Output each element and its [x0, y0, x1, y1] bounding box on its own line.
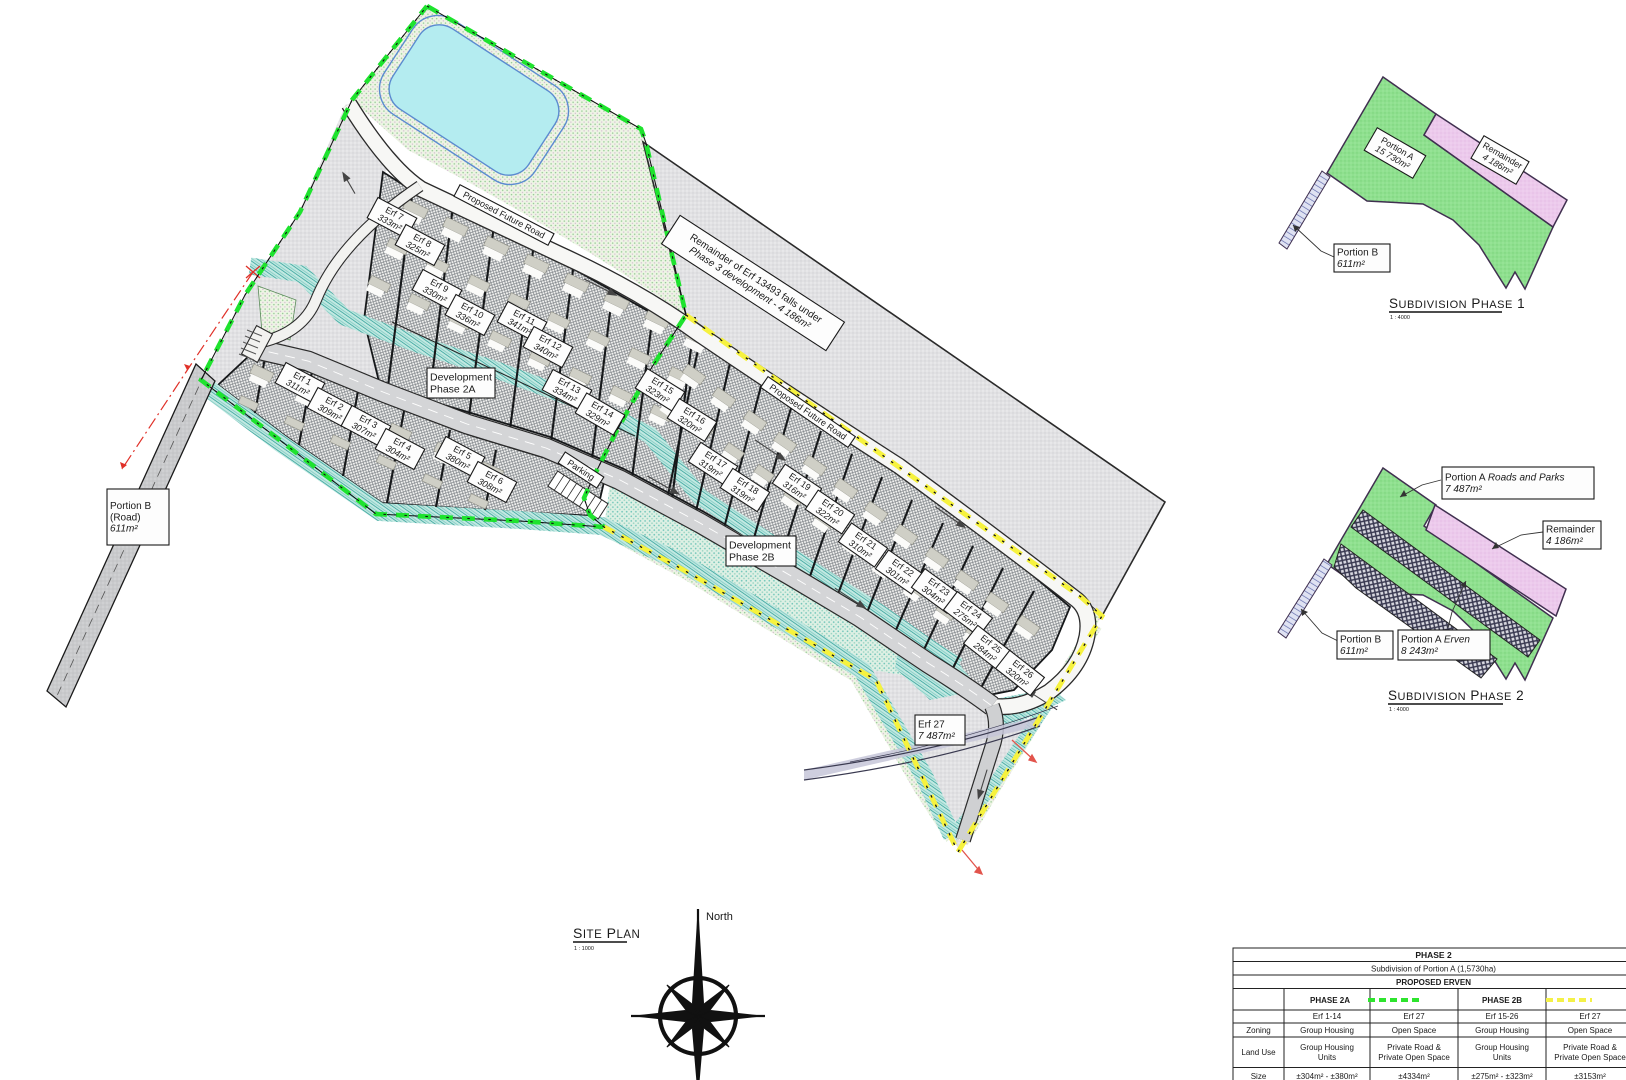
svg-text:Phase 2A: Phase 2A: [430, 383, 476, 395]
svg-text:Remainder: Remainder: [1546, 525, 1596, 536]
svg-text:Development: Development: [729, 540, 791, 552]
svg-text:611m²: 611m²: [1340, 646, 1368, 657]
svg-text:Private Open Space: Private Open Space: [1554, 1053, 1626, 1062]
svg-text:Units: Units: [1318, 1053, 1336, 1062]
svg-text:Erf 27: Erf 27: [1403, 1012, 1425, 1021]
svg-text:4 186m²: 4 186m²: [1546, 536, 1583, 547]
svg-text:(Road): (Road): [110, 512, 141, 523]
svg-text:PHASE 2B: PHASE 2B: [1482, 996, 1522, 1005]
svg-text:SUBDIVISION PHASE 2: SUBDIVISION PHASE 2: [1388, 688, 1524, 703]
svg-text:±275m² - ±323m²: ±275m² - ±323m²: [1471, 1072, 1533, 1080]
svg-text:Portion A Erven: Portion A Erven: [1401, 635, 1470, 646]
svg-text:±3153m²: ±3153m²: [1574, 1072, 1606, 1080]
svg-text:Size: Size: [1251, 1072, 1267, 1080]
svg-text:Erf 27: Erf 27: [918, 720, 945, 731]
svg-text:1 : 1000: 1 : 1000: [574, 946, 594, 952]
svg-text:Development: Development: [430, 372, 492, 384]
svg-text:Subdivision of Portion A (1,57: Subdivision of Portion A (1,5730ha): [1371, 965, 1496, 974]
svg-text:Land Use: Land Use: [1241, 1048, 1276, 1057]
svg-text:611m²: 611m²: [110, 524, 138, 535]
svg-text:Private Road &: Private Road &: [1563, 1043, 1617, 1052]
svg-text:Erf 15-26: Erf 15-26: [1486, 1012, 1519, 1021]
svg-text:Group Housing: Group Housing: [1475, 1043, 1529, 1052]
svg-text:PHASE 2A: PHASE 2A: [1310, 996, 1350, 1005]
svg-text:7 487m²: 7 487m²: [1445, 484, 1482, 495]
svg-text:±4334m²: ±4334m²: [1398, 1072, 1430, 1080]
svg-text:Erf 1-14: Erf 1-14: [1313, 1012, 1342, 1021]
svg-text:Portion A Roads and Parks: Portion A Roads and Parks: [1445, 473, 1565, 484]
svg-text:Private Open Space: Private Open Space: [1378, 1053, 1450, 1062]
svg-text:Group Housing: Group Housing: [1475, 1026, 1529, 1035]
svg-text:Group Housing: Group Housing: [1300, 1043, 1354, 1052]
svg-text:PROPOSED ERVEN: PROPOSED ERVEN: [1396, 978, 1471, 987]
svg-text:North: North: [706, 911, 733, 923]
svg-text:Private Road &: Private Road &: [1387, 1043, 1441, 1052]
svg-text:PHASE 2: PHASE 2: [1415, 950, 1452, 960]
svg-text:SUBDIVISION PHASE 1: SUBDIVISION PHASE 1: [1389, 296, 1525, 311]
svg-text:Group Housing: Group Housing: [1300, 1026, 1354, 1035]
svg-text:Portion B: Portion B: [1340, 635, 1381, 646]
svg-text:Open Space: Open Space: [1392, 1026, 1437, 1035]
svg-text:611m²: 611m²: [1337, 259, 1365, 270]
svg-text:Units: Units: [1493, 1053, 1511, 1062]
svg-text:7 487m²: 7 487m²: [918, 731, 955, 742]
svg-text:1 : 4000: 1 : 4000: [1389, 707, 1409, 713]
svg-text:Zoning: Zoning: [1246, 1026, 1270, 1035]
svg-text:Erf 27: Erf 27: [1579, 1012, 1601, 1021]
svg-text:1 : 4000: 1 : 4000: [1390, 315, 1410, 321]
svg-text:Portion B: Portion B: [1337, 248, 1378, 259]
svg-text:±304m² - ±380m²: ±304m² - ±380m²: [1296, 1072, 1358, 1080]
svg-text:Open Space: Open Space: [1568, 1026, 1613, 1035]
svg-text:8 243m²: 8 243m²: [1401, 646, 1438, 657]
svg-text:Phase 2B: Phase 2B: [729, 551, 775, 563]
svg-text:Portion B: Portion B: [110, 501, 151, 512]
